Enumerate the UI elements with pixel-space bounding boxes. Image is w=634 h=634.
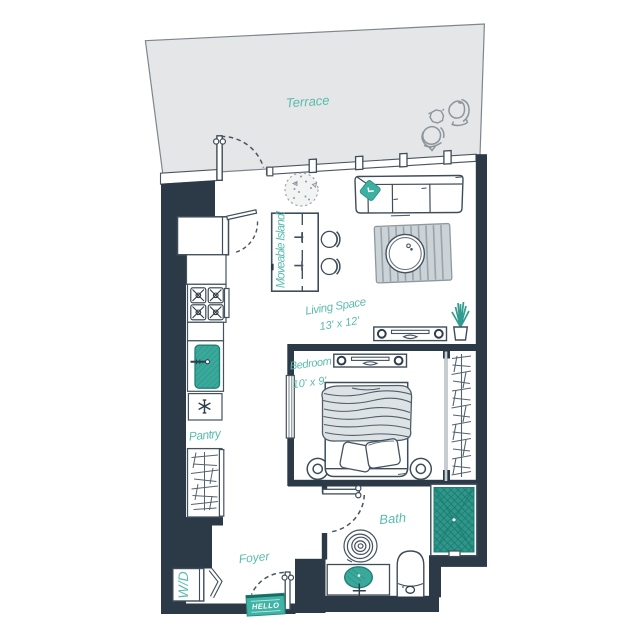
svg-text:Moveable Island!: Moveable Island! [274,210,288,288]
svg-text:HELLO: HELLO [252,601,280,612]
svg-text:W/D: W/D [175,571,191,598]
svg-text:Terrace: Terrace [285,93,330,111]
svg-text:Bath: Bath [379,510,407,527]
